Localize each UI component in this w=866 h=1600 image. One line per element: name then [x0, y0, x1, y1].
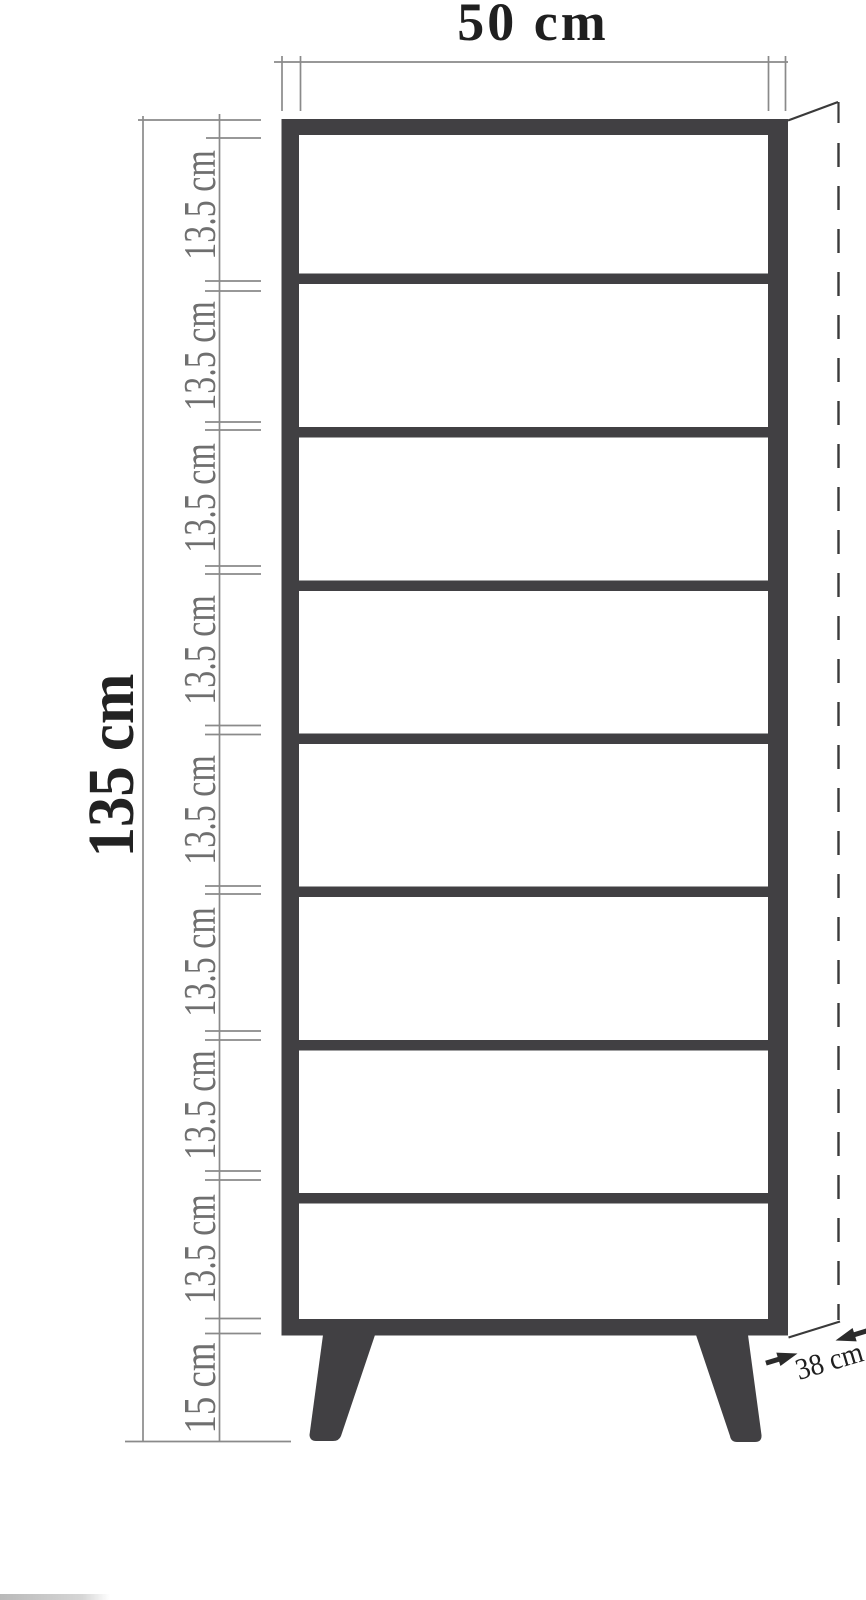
- svg-text:13.5 cm: 13.5 cm: [174, 1050, 225, 1160]
- svg-text:38 cm: 38 cm: [792, 1335, 866, 1386]
- svg-text:50 cm: 50 cm: [457, 0, 608, 52]
- svg-text:15 cm: 15 cm: [175, 1343, 226, 1434]
- svg-text:13.5 cm: 13.5 cm: [174, 443, 225, 553]
- svg-text:13.5 cm: 13.5 cm: [174, 301, 225, 411]
- svg-text:13.5 cm: 13.5 cm: [174, 595, 225, 705]
- svg-text:135 cm: 135 cm: [74, 674, 148, 858]
- svg-text:13.5 cm: 13.5 cm: [174, 755, 225, 865]
- svg-text:13.5 cm: 13.5 cm: [174, 907, 225, 1017]
- svg-text:13.5 cm: 13.5 cm: [174, 1194, 225, 1304]
- svg-text:13.5 cm: 13.5 cm: [174, 150, 225, 260]
